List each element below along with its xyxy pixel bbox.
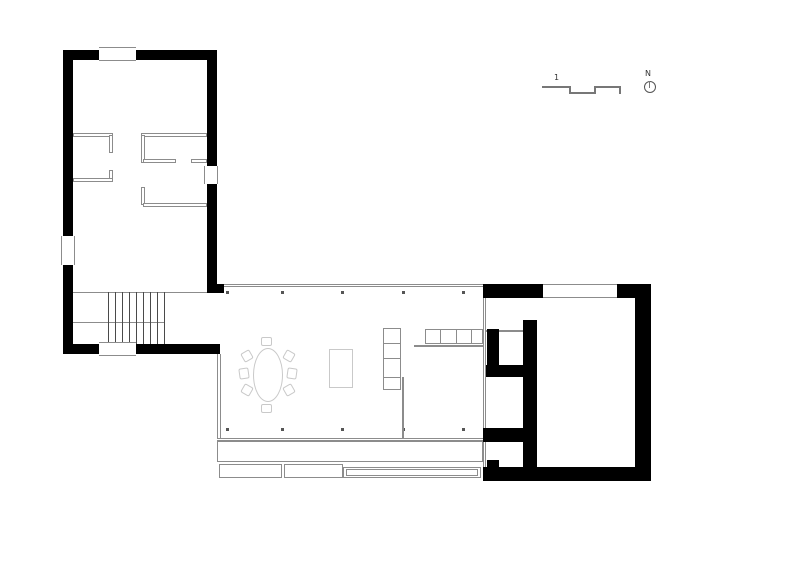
stair-tread <box>108 292 109 344</box>
column-dot <box>462 291 465 294</box>
column-dot <box>281 428 284 431</box>
partition <box>109 170 113 179</box>
window <box>204 166 218 184</box>
partition <box>73 178 113 182</box>
right-block-cell-wall <box>487 329 499 365</box>
partition <box>143 203 207 207</box>
stair-tread <box>115 292 116 344</box>
counter-line <box>414 345 483 347</box>
shelf-divider <box>440 329 441 344</box>
north-arrow-icon <box>644 81 656 93</box>
dining-chair <box>261 404 272 413</box>
terrace-step-2 <box>284 464 343 478</box>
shelf-divider <box>471 329 472 344</box>
column-dot <box>341 428 344 431</box>
scale-bar-segment <box>569 92 596 94</box>
left-block-right-wall-a <box>207 50 217 166</box>
right-block-bottom-wall <box>483 467 651 481</box>
column-dot <box>281 291 284 294</box>
stair-tread <box>136 292 137 344</box>
window <box>543 284 617 298</box>
stair-landing-line <box>73 292 207 293</box>
window <box>99 47 136 61</box>
window <box>61 236 75 265</box>
terrace-deck <box>217 441 483 462</box>
partition <box>73 133 113 137</box>
window <box>99 342 136 356</box>
column-dot <box>462 428 465 431</box>
dining-chair <box>240 349 254 363</box>
right-block-separator-2 <box>483 428 537 442</box>
dining-table <box>253 348 283 402</box>
left-block-left-wall-b <box>63 265 73 354</box>
right-block-bottom-stub <box>487 460 499 467</box>
rug <box>329 349 353 388</box>
right-block-top-wall-a <box>483 284 543 298</box>
scale-label: 1 <box>554 74 564 83</box>
north-label: N <box>645 70 655 79</box>
floor-plan-canvas: 1N <box>0 0 800 565</box>
stair-tread <box>164 292 165 344</box>
left-block-right-wall-b <box>207 184 217 293</box>
column-dot <box>226 428 229 431</box>
dining-chair <box>286 367 297 379</box>
column-dot <box>341 291 344 294</box>
stair-tread <box>122 292 123 344</box>
column-dot <box>402 291 405 294</box>
partition <box>191 159 207 163</box>
shelf-horizontal <box>425 329 483 344</box>
shelf-divider <box>383 343 401 344</box>
dining-chair <box>282 349 296 363</box>
living-left-wall <box>217 354 221 438</box>
partition <box>109 135 113 153</box>
scale-bar-segment <box>542 86 571 88</box>
terrace-step-3-inner <box>346 469 478 476</box>
partition <box>143 159 176 163</box>
left-block-left-wall-a <box>63 50 73 236</box>
stair-tread <box>129 292 130 344</box>
dining-chair <box>282 383 296 397</box>
dining-chair <box>261 337 272 346</box>
shelf-divider <box>383 358 401 359</box>
scale-bar-segment <box>594 86 621 88</box>
terrace-step-1 <box>219 464 282 478</box>
dining-chair <box>240 383 254 397</box>
partition <box>141 133 207 137</box>
scale-bar-end-tick <box>619 86 621 94</box>
corner-stub <box>216 284 224 293</box>
stair-tread <box>157 292 158 344</box>
right-block-right-wall <box>635 284 651 481</box>
shelf-divider <box>383 377 401 378</box>
stair-tread <box>143 292 144 344</box>
left-block-bottom-wall-b <box>136 344 220 354</box>
right-block-separator-1 <box>486 365 537 377</box>
shelf-divider <box>456 329 457 344</box>
dining-chair <box>238 367 249 379</box>
left-block-top-wall-b <box>136 50 217 60</box>
left-block-bottom-wall-a <box>63 344 99 354</box>
stair-tread <box>150 292 151 344</box>
right-block-core-wall <box>523 320 537 467</box>
screen-partition-line <box>402 377 404 438</box>
column-dot <box>226 291 229 294</box>
north-needle <box>649 81 650 88</box>
living-top-glass-wall <box>217 284 483 287</box>
shelf-vertical <box>383 328 401 390</box>
